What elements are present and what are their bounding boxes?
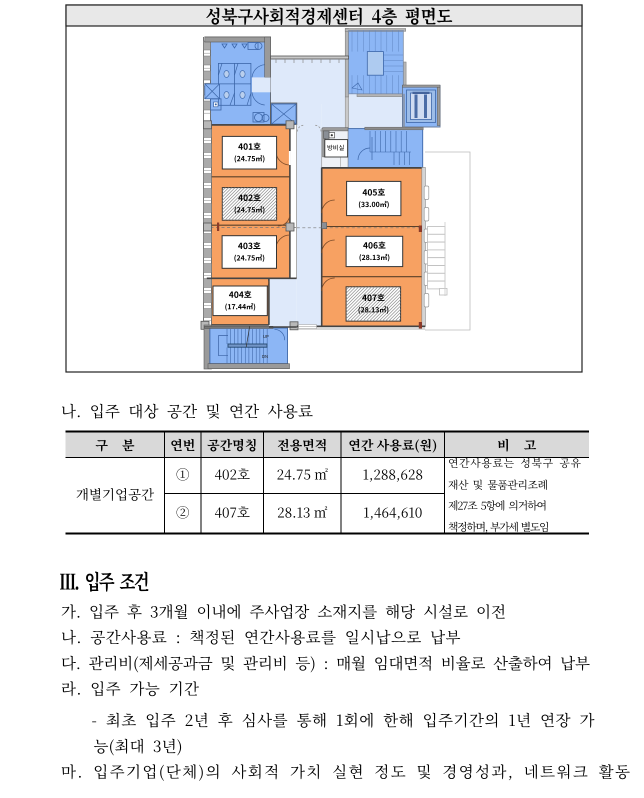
svg-text:UP: UP: [263, 334, 269, 339]
svg-text:DN: DN: [262, 354, 268, 359]
